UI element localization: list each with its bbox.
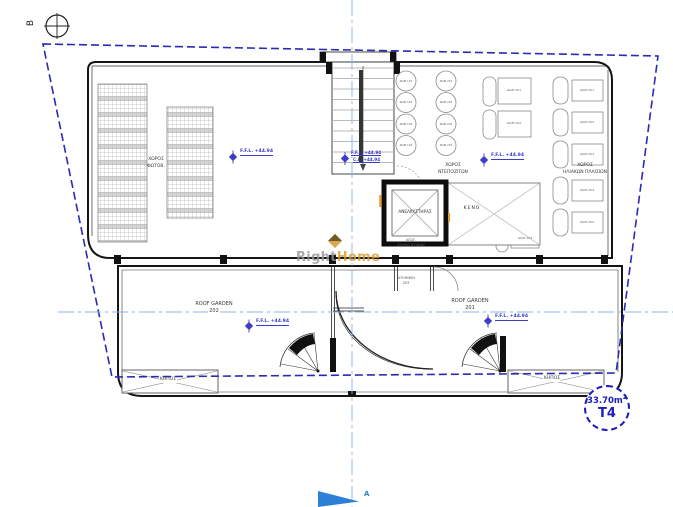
solar-unit-label: ΔΙΑΜ 102 <box>507 122 521 125</box>
pv-area-label-1: ΧΩΡΟΣ <box>148 158 164 163</box>
solar-unit-label: ΔΙΑΜ 205 <box>580 221 594 224</box>
level-tanks: F.F.L. +44.94 <box>491 154 524 160</box>
watermark: RightHome <box>296 250 380 265</box>
badge-area-sup: 2 <box>623 394 627 401</box>
tanks-area-label-1: ΧΩΡΟΣ <box>445 164 461 169</box>
solar-unit-label: ΔΙΑΜ 101 <box>507 89 521 92</box>
level-roof-garden-right: F.F.L. +44.94 <box>495 315 528 321</box>
unit-area-badge: 33.70m2 T4 <box>584 385 630 431</box>
tank-label: ΔΩΜ 203 <box>440 123 453 126</box>
badge-area-value: 33.70m <box>587 396 623 406</box>
level-stair-ffl: F.F.L. +44.94 <box>351 151 381 156</box>
solar-unit-label: ΔΙΑΜ 202 <box>580 121 594 124</box>
tank-label: ΔΩΜ 101 <box>400 80 413 83</box>
ac-duct-label-2: ΚΛΙΜΑΤΙΣΤΙΚΩΝ <box>397 244 424 248</box>
section-label-b: B <box>26 20 36 26</box>
pv-area-label-2: ΦΩΤΟΒ. <box>147 165 165 170</box>
storage-label: ΑΠΟΘΗΚΗ <box>397 277 415 281</box>
storage-number: 203 <box>403 282 410 286</box>
roof-garden-right-number: 201 <box>464 306 476 311</box>
garden-right-label: ΚΗΠΟΣ <box>543 377 561 382</box>
tank-label: ΔΩΜ 104 <box>400 144 413 147</box>
tank-label: ΔΩΜ 102 <box>400 101 413 104</box>
level-roof-garden-left: F.F.L. +44.94 <box>256 320 289 326</box>
solar-unit-label: ΔΙΑΜ 204 <box>580 189 594 192</box>
floor-plan-canvas: B ΧΩΡΟΣ ΦΩΤΟΒ. F.F.L. +44.94 F.F.L. +44.… <box>0 0 673 507</box>
badge-unit-code: T4 <box>586 406 628 421</box>
section-arrow-a <box>318 491 359 507</box>
roof-garden-left-title: ROOF GARDEN <box>194 302 233 307</box>
solar-area-label-1: ΧΩΡΟΣ <box>577 164 593 169</box>
elevator-label: ΑΝΕΛΚΥΣΤΗΡΑΣ <box>398 210 431 214</box>
watermark-part1: Right <box>296 250 337 265</box>
solar-unit-label: ΔΙΑΜ 201 <box>580 89 594 92</box>
solar-unit-label: ΔΙΑΜ 203 <box>580 153 594 156</box>
void-label: ΚΕΝΟ <box>464 207 481 212</box>
tanks-area-label-2: ΝΤΕΠΟΖΙΤΩΝ <box>438 171 468 176</box>
section-label-a: A <box>364 490 369 498</box>
watermark-part2: Home <box>337 250 380 265</box>
solar-area-label-2: ΗΛΙΑΚΩΝ ΠΛΑΙΣΙΩΝ <box>563 171 607 176</box>
solar-units-right <box>553 77 603 236</box>
roof-garden-right-title: ROOF GARDEN <box>450 299 489 304</box>
roof-garden-left-number: 202 <box>208 309 220 314</box>
solar-unit-label: ΔΙΑΜ 103 <box>518 237 532 240</box>
tank-label: ΔΩΜ 204 <box>440 144 453 147</box>
section-bubble-b <box>44 13 70 39</box>
tank-label: ΔΩΜ 201 <box>440 80 453 83</box>
level-pv: F.F.L. +44.94 <box>240 150 273 156</box>
level-stair-cl: C.L. +44.94 <box>353 158 380 163</box>
tank-label: ΔΩΜ 202 <box>440 101 453 104</box>
tank-label: ΔΩΜ 103 <box>400 123 413 126</box>
garden-left-label: ΚΗΠΟΣ <box>159 378 177 383</box>
